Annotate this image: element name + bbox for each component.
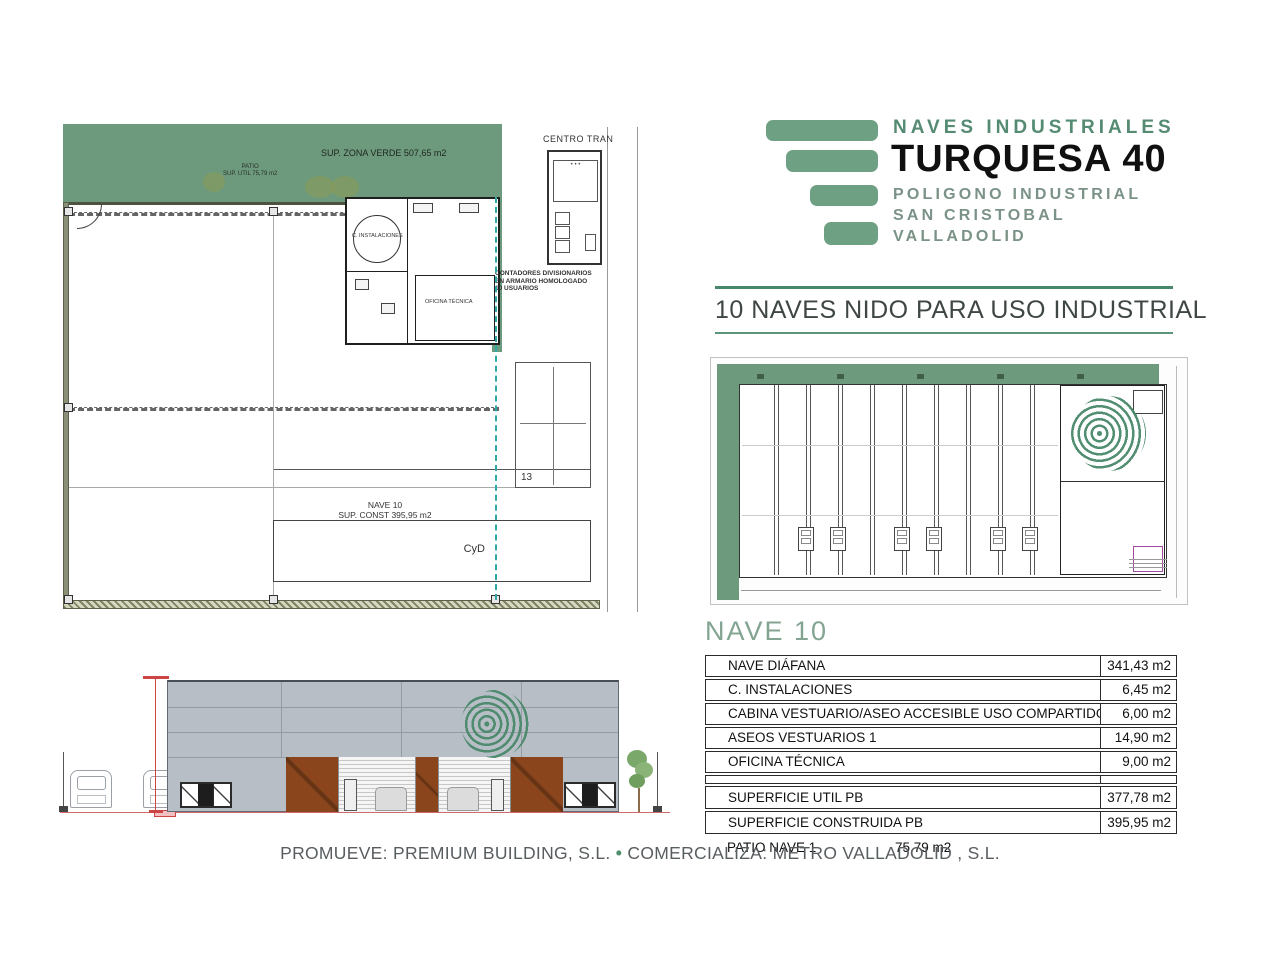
logo-title: TURQUESA 40 [891,138,1167,181]
table-row: ASEOS VESTUARIOS 1 14,90 m2 [705,727,1177,749]
column-marker [269,207,278,216]
footer: PROMUEVE: PREMIUM BUILDING, S.L. • COMER… [0,843,1280,864]
row-value: 377,78 m2 [1100,787,1176,808]
oficina-tecnica-room [415,275,495,341]
facade [167,680,619,812]
window-pane [198,784,214,806]
pedestrian-door [344,779,357,811]
rooms-block: C. INSTALACIONES OFICINA TÉCNICA [345,197,500,345]
brown-cladding-panel [416,757,438,812]
centro-transformacion-label: CENTRO TRAN [543,134,613,144]
logo-bar-icon [786,150,878,172]
tree-trunk [638,788,640,812]
wc-icon [381,303,395,314]
dim-line [553,367,554,485]
brochure-page: SUP. ZONA VERDE 507,65 m2 PATIO SUP. UTI… [0,0,1280,960]
centro-transformacion-structure: • • • [547,150,602,265]
cabinet-icon [585,234,596,251]
row-value: 341,43 m2 [1100,656,1176,676]
heading-rule-top [715,286,1173,289]
van-grille [77,795,106,804]
cabinet-icon [555,240,570,253]
lamppost-icon [63,752,64,812]
cabinet-icon [555,226,570,239]
road-line [607,127,608,612]
lamppost-base [59,806,68,812]
firewall-band [63,600,600,609]
window-pane [597,784,614,806]
logo-subtitle: SAN CRISTOBAL [893,207,1066,225]
panel-joint [281,682,282,757]
column-marker [64,595,73,604]
row-value: 9,00 m2 [1100,752,1176,772]
section-heading: 10 NAVES NIDO PARA USO INDUSTRIAL [715,286,1173,334]
column-marker [64,207,73,216]
van-icon [70,770,112,808]
row-label: SUPERFICIE UTIL PB [706,787,1100,808]
elevation-drawing [55,660,675,840]
inner-grid-line [742,515,1058,516]
title-block [1129,556,1167,568]
green-band-mark [837,374,844,379]
floor-plan: SUP. ZONA VERDE 507,65 m2 PATIO SUP. UTI… [55,112,645,632]
contadores-line: EN ARMARIO HOMOLOGADO [495,278,592,286]
column-marker [269,595,278,604]
green-band-mark [1077,374,1084,379]
row-label: OFICINA TÉCNICA [706,752,1100,772]
row-label: SUPERFICIE CONSTRUIDA PB [706,812,1100,833]
green-band-mark [917,374,924,379]
lamppost-icon [657,752,658,812]
tree-icon [629,774,645,788]
zona-verde-label: SUP. ZONA VERDE 507,65 m2 [321,148,446,158]
parking-bay: 13 [515,362,591,488]
shrub-icon [331,176,359,198]
bullet-separator: • [616,843,622,863]
sanitary-block [1022,527,1038,551]
bay-divider [870,385,875,575]
site-green-band-left [717,364,739,600]
table-row: CABINA VESTUARIO/ASEO ACCESIBLE USO COMP… [705,703,1177,725]
van-silhouette-icon [375,787,407,811]
sanitary-block [830,527,846,551]
patio-area: SUP. UTIL 75,79 m2 [223,171,277,178]
bay-divider [966,385,971,575]
table-total-row: SUPERFICIE UTIL PB 377,78 m2 [705,786,1177,809]
table-row: NAVE DIÁFANA 341,43 m2 [705,655,1177,677]
dimension-tick [143,676,169,679]
pedestrian-door [491,779,504,811]
table-total-row: SUPERFICIE CONSTRUIDA PB 395,95 m2 [705,811,1177,834]
logo-subtitle: VALLADOLID [893,228,1027,246]
sanitary-block [798,527,814,551]
panel-joint [401,682,402,757]
dimension-tick [149,810,163,813]
roller-door [338,757,416,812]
contadores-note: CONTADORES DIVISIONARIOS EN ARMARIO HOMO… [495,270,592,293]
logo-bar-icon [810,185,878,206]
row-value: 6,45 m2 [1100,680,1176,700]
bay-divider [774,385,779,575]
table-spacer-row [705,775,1177,784]
sanitary-block [894,527,910,551]
table-row: OFICINA TÉCNICA 9,00 m2 [705,751,1177,773]
row-label: C. INSTALACIONES [706,680,1100,700]
patio-title: PATIO [223,164,277,171]
site-dim-line [741,590,1161,591]
promueve-text: PROMUEVE: PREMIUM BUILDING, S.L. [280,843,611,863]
window-pane [213,784,230,806]
cyd-label: CyD [464,543,485,555]
row-value: 6,00 m2 [1100,704,1176,724]
grid-line [69,407,499,411]
brown-cladding-panel [511,757,563,812]
heading-rule-bottom [715,332,1173,334]
row-value: 395,95 m2 [1100,812,1176,833]
roller-door [438,757,511,812]
contadores-line: 10 USUARIOS [495,285,592,293]
parking-number: 13 [521,472,532,483]
logo-bar-icon [824,222,878,245]
unit-partition [1061,481,1164,482]
brown-cladding-panel [286,757,338,812]
window-pane [582,784,598,806]
sanitary-block [990,527,1006,551]
table-title: NAVE 10 [705,616,1177,647]
window-strip [180,782,232,808]
comercializa-text: COMERCIALIZA: METRO VALLADOLID , S.L. [627,843,1000,863]
panel-joint [168,707,618,708]
green-zone: SUP. ZONA VERDE 507,65 m2 PATIO SUP. UTI… [63,124,495,205]
road-line [637,127,638,612]
van-silhouette-icon [447,787,479,811]
table-row: C. INSTALACIONES 6,45 m2 [705,679,1177,701]
brand-logo-circle [461,690,529,758]
oficina-label: OFICINA TÉCNICA [425,299,473,306]
row-value: 14,90 m2 [1100,728,1176,748]
logo-subtitle: POLIGONO INDUSTRIAL [893,186,1141,204]
row-label: CABINA VESTUARIO/ASEO ACCESIBLE USO COMP… [706,704,1100,724]
nave-area-label: NAVE 10 SUP. CONST 395,95 m2 [290,500,480,520]
green-band-mark [997,374,1004,379]
row-label: ASEOS VESTUARIOS 1 [706,728,1100,748]
site-plan [710,357,1188,605]
nave-name: NAVE 10 [290,500,480,510]
logo-bar-icon [766,120,878,141]
sanitary-block [926,527,942,551]
door-swing-icon [77,204,102,229]
grid-line [69,487,591,488]
height-dimension-line [155,678,156,812]
wc-icon [355,279,369,290]
green-band-mark [757,374,764,379]
sink-icon [413,203,433,213]
shrub-icon [203,172,225,192]
nave-sup-const: SUP. CONST 395,95 m2 [290,510,480,520]
partition-wall [407,199,408,343]
logo-tagline: NAVES INDUSTRIALES [893,117,1175,139]
window-pane [566,784,582,806]
surface-table-section: NAVE 10 NAVE DIÁFANA 341,43 m2 C. INSTAL… [705,616,1177,858]
site-green-band-top [717,364,1159,384]
site-boundary [1176,366,1177,598]
window-pane [182,784,198,806]
window-strip [564,782,616,808]
page-title: 10 NAVES NIDO PARA USO INDUSTRIAL [715,296,1173,325]
row-label: NAVE DIÁFANA [706,656,1100,676]
column-marker [64,403,73,412]
contadores-line: CONTADORES DIVISIONARIOS [495,270,592,278]
patio-label: PATIO SUP. UTIL 75,79 m2 [223,164,277,178]
cabinet-icon [555,212,570,225]
partition-wall [347,271,407,272]
panel-joint [168,732,618,733]
sink-icon [459,203,479,213]
instalaciones-label: C. INSTALACIONES [352,233,403,240]
lamppost-base [653,806,662,812]
brand-logo-circle [1071,396,1146,471]
inner-grid-line [742,445,1058,446]
transformer-icon: • • • [553,160,598,202]
cyd-zone: CyD [273,520,591,582]
van-windshield [77,776,106,790]
